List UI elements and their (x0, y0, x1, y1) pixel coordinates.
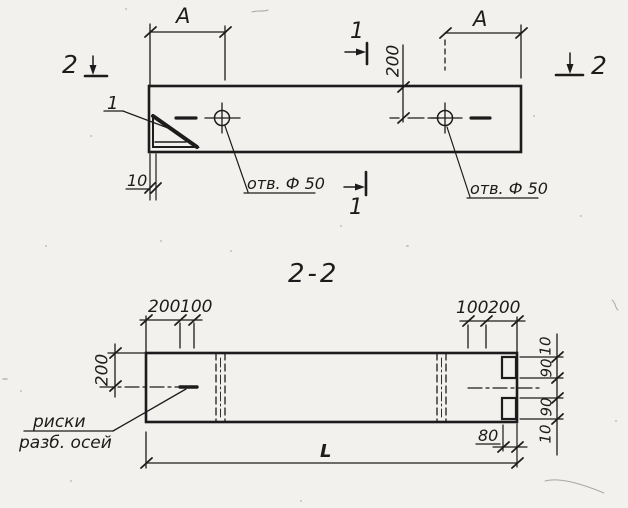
dimension-a-left (145, 24, 231, 86)
dim-80-label: 80 (478, 428, 498, 444)
scan-speckle (615, 420, 617, 422)
scan-speckle (90, 135, 92, 137)
dim-200-side-label: 200 (95, 354, 112, 386)
scan-speckle (45, 245, 47, 247)
dim-10-plan-label: 10 (127, 173, 147, 189)
dimension-100-200-right (460, 316, 525, 353)
scan-speckle (20, 390, 22, 392)
centre-axis (100, 387, 542, 388)
scan-speckle (160, 240, 162, 242)
scan-speckle (533, 115, 535, 117)
dim-90-top-label: 90 (540, 358, 555, 377)
scan-speckle (2, 378, 8, 380)
corner-detail-callout-label: 1 (107, 95, 118, 113)
dim-10-bottom-label: 10 (539, 424, 554, 443)
dim-10-top-label: 10 (539, 336, 554, 355)
section-title: 2-2 (288, 261, 339, 287)
dimension-length (141, 432, 523, 468)
end-notch-bottom (502, 398, 516, 419)
technical-drawing (0, 0, 628, 508)
beam-outline-plan (149, 86, 521, 152)
axis-marks-label-line1: риски (33, 414, 86, 431)
beam-outline-section (146, 353, 517, 422)
section-marker-2-right (556, 53, 583, 75)
end-notch-top (502, 357, 516, 378)
dim-100-top-right-label: 100 (456, 300, 488, 317)
section-marker-1-top (345, 43, 367, 64)
dimension-200-100-left (140, 315, 202, 353)
axis-marks-label-line2: разб. осей (19, 435, 112, 452)
corner-triangle-mark (153, 116, 197, 147)
dim-200-plan-label: 200 (386, 45, 403, 77)
dim-length-label: L (320, 443, 331, 461)
section-1-top-label: 1 (350, 21, 364, 43)
dim-90-bottom-label: 90 (540, 397, 555, 416)
scan-speckle (406, 245, 409, 247)
hidden-hole-right (437, 353, 446, 422)
dimension-200-side (108, 344, 146, 397)
hidden-hole-left (216, 353, 225, 422)
top-view (85, 24, 583, 200)
section-marker-1-bottom (344, 172, 366, 195)
dim-200-top-right-label: 200 (488, 300, 520, 317)
scan-speckle (340, 225, 342, 227)
dim-a-left-label: A (176, 6, 190, 27)
hole-left (176, 103, 240, 133)
scan-artifacts (252, 10, 618, 493)
dim-100-top-left-label: 100 (180, 299, 212, 316)
hole-left-label: отв. Ф 50 (247, 176, 325, 192)
dimension-a-right (440, 25, 527, 78)
section-1-bottom-label: 1 (349, 197, 363, 219)
dim-200-top-left-label: 200 (148, 299, 180, 316)
section-2-left-label: 2 (62, 52, 78, 77)
hole-right-label: отв. Ф 50 (470, 181, 548, 197)
scan-speckle (230, 250, 232, 252)
scanned-drawing-page: A A 1 1 2 2 1 200 отв. Ф 50 отв. Ф 50 10… (0, 0, 628, 508)
scan-speckle (300, 500, 302, 502)
scan-speckle (580, 215, 582, 217)
scan-speckle (70, 480, 72, 482)
dim-a-right-label: A (473, 9, 487, 30)
section-2-right-label: 2 (591, 53, 607, 78)
section-marker-2-left (85, 56, 107, 76)
scan-speckle (125, 8, 127, 10)
